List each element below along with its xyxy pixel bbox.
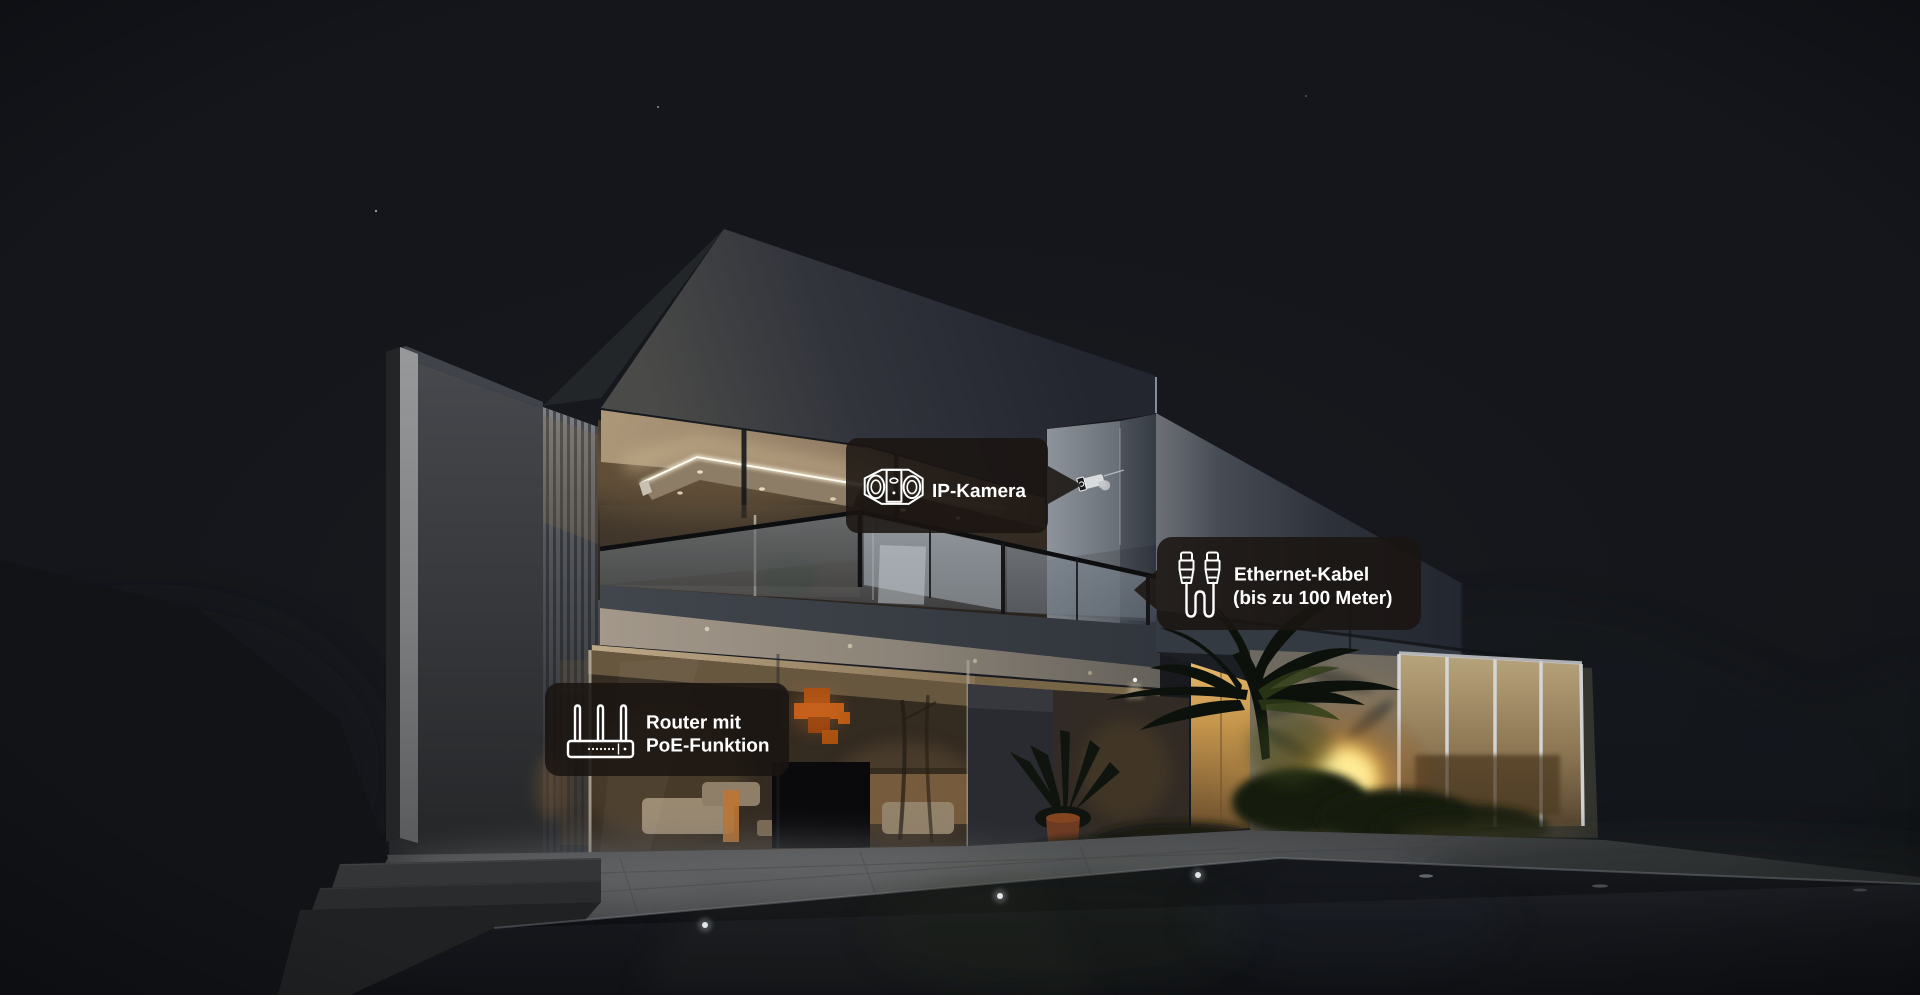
svg-text:(bis zu 100 Meter): (bis zu 100 Meter) [1233, 588, 1392, 609]
svg-text:IP-Kamera: IP-Kamera [932, 481, 1026, 502]
svg-text:Ethernet-Kabel: Ethernet-Kabel [1234, 565, 1369, 586]
svg-text:PoE-Funktion: PoE-Funktion [646, 736, 769, 757]
svg-text:Router mit: Router mit [646, 713, 742, 734]
